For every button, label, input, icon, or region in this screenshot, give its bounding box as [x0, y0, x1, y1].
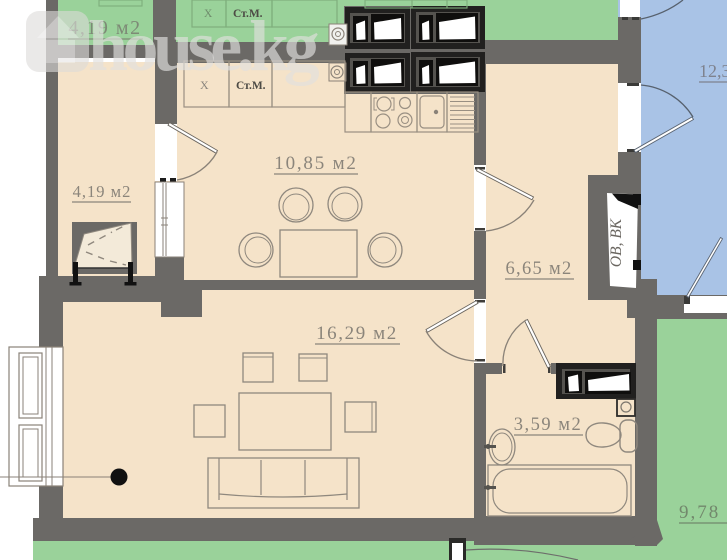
svg-text:6,65 м2: 6,65 м2 [505, 259, 572, 279]
svg-text:9,78 м: 9,78 м [679, 502, 727, 523]
svg-text:ОВ, ВК: ОВ, ВК [608, 218, 625, 267]
svg-text:house.kg: house.kg [88, 6, 320, 86]
svg-text:12,3: 12,3 [699, 61, 727, 81]
svg-text:3,59 м2: 3,59 м2 [514, 415, 582, 435]
svg-text:16,29 м2: 16,29 м2 [316, 323, 398, 344]
svg-text:4,19 м2: 4,19 м2 [73, 182, 132, 201]
svg-text:10,85 м2: 10,85 м2 [274, 153, 357, 174]
